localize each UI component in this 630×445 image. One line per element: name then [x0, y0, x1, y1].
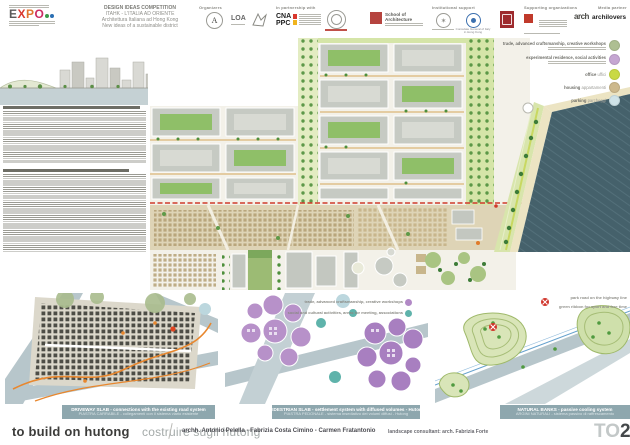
legend-label: experimental residence, social activitie…: [526, 55, 606, 60]
legend-dot: [405, 310, 412, 317]
organizers-label: Organizers: [199, 5, 222, 10]
legend-label: office: [585, 72, 596, 77]
hutong-block-grid: [35, 303, 195, 383]
expo-dot-green: [45, 14, 49, 18]
legend-item-office: office uffici: [585, 69, 620, 80]
legend-dot: [609, 82, 620, 93]
consulate-caption: Consulate General of Italy in Hong Kong: [455, 28, 491, 35]
legend-dot: [405, 299, 412, 306]
legend-sublabel: appartamenti: [582, 85, 606, 90]
to2-logo: TO2: [594, 421, 630, 443]
expo-logo-text: EXPO: [9, 8, 63, 20]
school-red-square: [370, 12, 382, 24]
text-block-2: [3, 169, 146, 252]
consulate-emblem-logo: [466, 13, 481, 28]
architects-credit: archh. Antonio Pelella - Fabrizia Costa …: [182, 428, 375, 434]
ppc-text: PPC: [276, 20, 291, 27]
legend-dot: [609, 95, 620, 106]
supporting-label: Supporting organizations: [524, 5, 577, 10]
legend-item-housing: housing appartamenti: [564, 82, 620, 93]
italy-emblem-logo: ✶: [436, 13, 451, 28]
natural-banks-diagram: [435, 293, 630, 404]
caption-driveway-slab: DRIVEWAY SLAB - connections with the exi…: [62, 405, 215, 419]
media-label: Media partner: [598, 5, 627, 10]
legend-sublabel-greek: [548, 61, 606, 64]
text-block-1-body: [3, 111, 146, 163]
organizer-seal-logo: A: [206, 12, 223, 29]
footer: to build on hutong costruire sugli huton…: [0, 420, 630, 445]
pedestrian-legend-item-1: trade, advanced craftsmanship, creative …: [305, 299, 412, 306]
text-block-1-heading: [3, 106, 140, 109]
legend-label: housing: [564, 85, 580, 90]
arch-logo: arch: [574, 12, 589, 21]
legend-sublabel-greek: [548, 47, 606, 50]
driveway-slab-diagram: [5, 293, 218, 404]
legend-label: parking: [571, 98, 586, 103]
legend-item-workshops: trade, advanced craftsmanship, creative …: [503, 40, 620, 51]
text-block-2-body: [3, 174, 146, 252]
round-seal-logo: [327, 10, 346, 29]
blue-pond: [199, 303, 211, 315]
text-block-2-heading: [3, 169, 129, 172]
seal-caption: [325, 29, 347, 31]
project-title-en: to build on hutong: [12, 424, 130, 439]
competition-title: DESIGN IDEAS COMPETITION ITAHK - L'ITALI…: [84, 5, 196, 29]
note-park-road: park road on the highway line: [500, 295, 627, 300]
hutong-strip: [150, 204, 510, 250]
natural-banks-notes: park road on the highway line green ribb…: [500, 295, 627, 309]
archilovers-logo: archilovers: [592, 14, 626, 21]
legend-dot: [609, 40, 620, 51]
legend-sublabel: parcheggi: [588, 98, 606, 103]
pedestrian-legend-item-2: social and cultural activities, areas fo…: [288, 310, 412, 317]
description-text-column: [3, 106, 146, 252]
school-of-architecture-logo: School of Architecture: [370, 12, 427, 26]
program-legend: trade, advanced craftsmanship, creative …: [430, 38, 626, 106]
elevation-underground-band: [0, 88, 148, 105]
legend-item-parking: parking parcheggi: [571, 95, 620, 106]
expo-logo: EXPO: [9, 5, 63, 27]
header: EXPO DESIGN IDEAS COMPETITION ITAHK - L'…: [0, 0, 630, 38]
hkia-logo: [524, 14, 567, 35]
note-green-ribbon: green ribbon for sport and free time: [500, 304, 627, 309]
consultant-credit: landscape consultant: arch. Fabrizia For…: [388, 429, 488, 435]
legend-sublabel: uffici: [597, 72, 606, 77]
red-crest-logo: [500, 11, 514, 28]
cna-ppc-logo: CNA PPC: [276, 13, 321, 27]
institutional-label: Institutional support: [432, 5, 475, 10]
school-logo-text: School of Architecture: [385, 12, 427, 22]
red-node: [170, 326, 175, 331]
origami-logo: [251, 12, 268, 28]
legend-item-residence: experimental residence, social activitie…: [526, 54, 620, 65]
legend-dot: [609, 54, 620, 65]
competition-poster: EXPO DESIGN IDEAS COMPETITION ITAHK - L'…: [0, 0, 630, 445]
cna-yellow-square: [293, 20, 297, 25]
expo-dot-blue: [50, 14, 54, 18]
pedestrian-legend: trade, advanced craftsmanship, creative …: [300, 299, 412, 323]
loa-logo: LOA: [231, 15, 246, 22]
text-block-1: [3, 106, 146, 163]
cna-red-square: [293, 14, 297, 19]
title-line-4: New ideas of a sustainable district: [84, 23, 196, 29]
caption-natural-banks: NATURAL BANKS - passive cooling system A…: [500, 405, 630, 419]
legend-dot: [609, 69, 620, 80]
partnership-label: In partnership with: [276, 5, 316, 10]
cna-text: CNA: [276, 13, 291, 20]
legend-label: trade, advanced craftsmanship, creative …: [503, 41, 606, 46]
caption-pedestrian-slab: PEDESTRIAN SLAB - settlement system with…: [272, 405, 420, 419]
